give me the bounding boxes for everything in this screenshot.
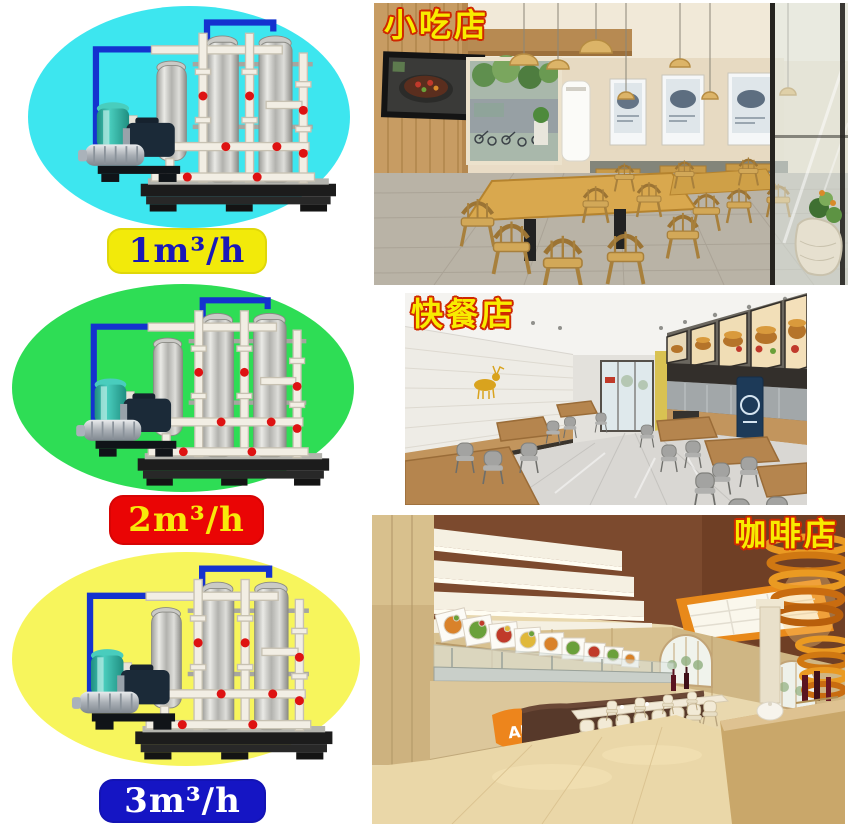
product-application-poster: 1m³/h 2m³/h 3m³/h [0, 0, 860, 824]
capacity-badge-3: 3m³/h [99, 779, 266, 823]
water-treatment-machine-1 [42, 10, 338, 216]
snack-shop-illustration [374, 3, 848, 285]
water-treatment-machine-2 [36, 288, 336, 490]
capacity-badge-1: 1m³/h [107, 228, 267, 274]
left-wood-wall [372, 515, 434, 765]
street-window [468, 55, 560, 163]
water-treatment-machine-3 [32, 556, 338, 764]
coffee-shop-illustration: AU [372, 515, 845, 824]
pillar [756, 599, 784, 703]
entrance-door [601, 361, 653, 431]
scene-label-fast-food: 快餐店 [411, 298, 516, 332]
scene-label-coffee-shop: 咖啡店 [734, 518, 839, 552]
capacity-badge-2: 2m³/h [109, 495, 264, 545]
scene-label-snack-shop: 小吃店 [384, 9, 489, 43]
menu-lightboxes [610, 73, 774, 145]
snack-shop-photo: 小吃店 [374, 3, 848, 285]
fast-food-photo: 快餐店 [405, 293, 807, 505]
air-conditioner [562, 81, 590, 161]
hanging-sign [737, 377, 763, 441]
coffee-shop-photo: AU [372, 515, 845, 824]
